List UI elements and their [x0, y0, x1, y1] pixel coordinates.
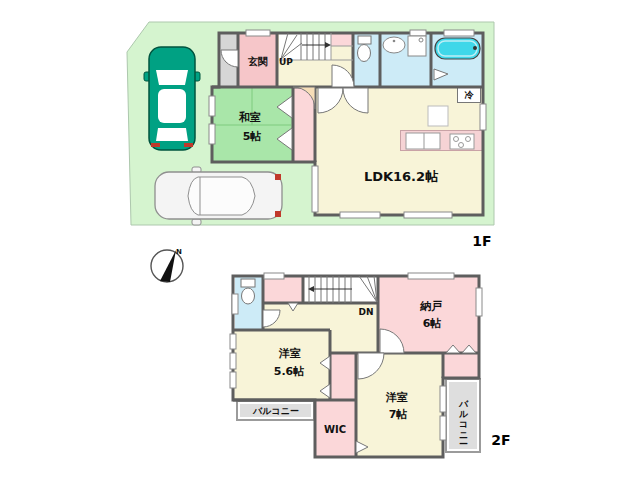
- bathtub-icon: [435, 38, 480, 59]
- label-refrigerator: 冷: [465, 91, 474, 100]
- label-nando-name: 納戸: [420, 301, 442, 312]
- label-yoshitsu-a-size: 5.6帖: [274, 366, 305, 377]
- label-stairs-down: DN: [358, 308, 373, 317]
- compass-north-label: N: [176, 249, 182, 256]
- label-yoshitsu-b-size: 7帖: [389, 409, 408, 420]
- label-wic: WIC: [324, 425, 346, 435]
- label-washitsu-name: 和室: [239, 112, 261, 123]
- label-genkan: 玄関: [248, 57, 268, 67]
- label-balcony-right: バルコニー: [459, 393, 468, 439]
- floor-plan-canvas: N 玄関 UP 和室 5帖 LDK16.2帖 冷 1F DN 納戸 6帖 洋室 …: [0, 0, 640, 480]
- walls-fixtures-layer: [0, 0, 640, 480]
- stove-icon: [450, 134, 474, 149]
- label-floor-1f: 1F: [472, 234, 491, 248]
- cupboard-icon: [428, 106, 448, 126]
- washbasin-icon: [383, 37, 405, 53]
- label-yoshitsu-b-name: 洋室: [386, 392, 408, 403]
- label-balcony-left: バルコニー: [253, 407, 299, 416]
- label-ldk: LDK16.2帖: [364, 170, 438, 183]
- label-yoshitsu-a-name: 洋室: [279, 348, 301, 359]
- label-floor-2f: 2F: [491, 433, 510, 447]
- kitchen-sink-icon: [406, 133, 440, 149]
- toilet-icon-1f: [358, 36, 372, 62]
- label-nando-size: 6帖: [423, 318, 442, 329]
- stairs-down-icon: [308, 276, 377, 303]
- washing-machine-icon: [408, 36, 426, 56]
- label-washitsu-size: 5帖: [243, 131, 262, 142]
- toilet-icon-2f: [241, 279, 255, 304]
- label-stairs-up: UP: [279, 58, 293, 67]
